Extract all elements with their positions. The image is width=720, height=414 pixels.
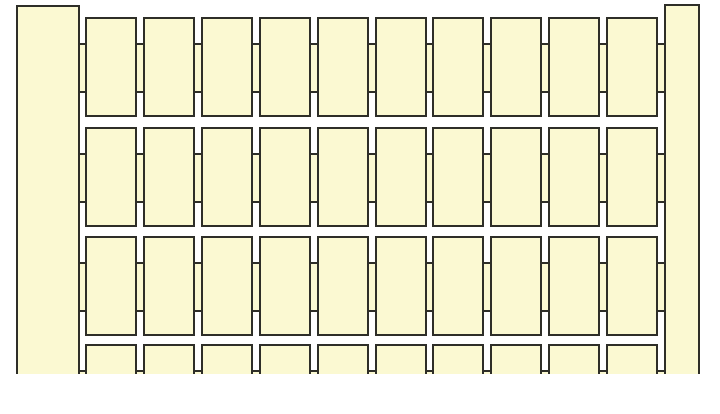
panel-cell [201,236,253,336]
panel-cell [490,344,542,374]
panel-cell [375,17,427,117]
right-rail [664,4,700,374]
panel-cell [201,17,253,117]
panel-cell [317,17,369,117]
panel-cell [85,344,137,374]
panel-cell [375,236,427,336]
panel-cell [548,127,600,227]
panel-cell [259,236,311,336]
panel-cell [548,17,600,117]
panel-cell [548,344,600,374]
left-rail [16,5,80,374]
panel-cell [85,17,137,117]
panel-cell [85,236,137,336]
panel-cell [143,344,195,374]
panel-cell [201,127,253,227]
panel-cell [606,17,658,117]
panel-cell [85,127,137,227]
panel-cell [432,127,484,227]
panel-cell [259,127,311,227]
panel-cell [317,344,369,374]
panel-cell [432,17,484,117]
panel-cell [143,17,195,117]
panel-cell [375,344,427,374]
panel-cell [490,17,542,117]
panel-cell [490,127,542,227]
panel-cell [201,344,253,374]
panel-cell [317,236,369,336]
panel-cell [548,236,600,336]
panel-cell [606,236,658,336]
panel-cell [490,236,542,336]
panel-cell [375,127,427,227]
panel-cell [606,127,658,227]
panel-cell [432,236,484,336]
panel-cell [143,127,195,227]
panel-diagram [0,0,720,414]
panel-cell [259,344,311,374]
panel-cell [432,344,484,374]
panel-cell [606,344,658,374]
panel-cell [259,17,311,117]
diagram-clip [0,0,720,374]
panel-cell [143,236,195,336]
panel-cell [317,127,369,227]
